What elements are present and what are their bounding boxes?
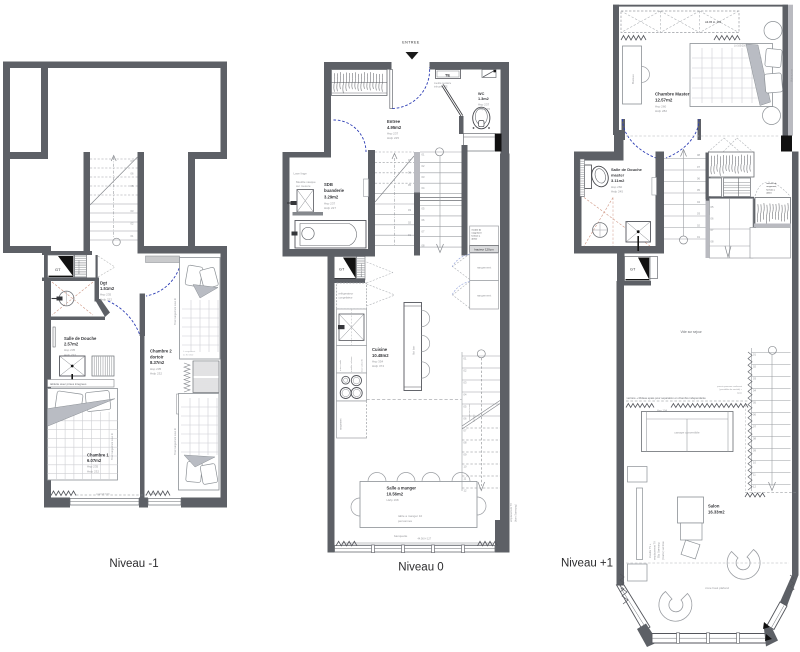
svg-text:tableau abonne: tableau abonne [360,262,363,277]
svg-text:Salle de Douche: Salle de Douche [64,336,97,341]
svg-text:meuble penderie: meuble penderie [434,82,452,85]
svg-text:Chambre Master: Chambre Master [655,92,690,97]
svg-text:emplacement TV: emplacement TV [510,503,513,522]
svg-text:Hsfp 225: Hsfp 225 [387,136,399,140]
svg-text:10.48m2: 10.48m2 [372,353,389,358]
svg-text:Hsp 235: Hsp 235 [64,348,76,352]
svg-text:meuble colonne: meuble colonne [351,356,353,372]
svg-text:hauteur 120cm: hauteur 120cm [474,248,494,252]
svg-text:Dgt: Dgt [100,281,108,286]
svg-text:Tiroir rangement sous lit: Tiroir rangement sous lit [174,298,177,325]
svg-text:Ilot bar: Ilot bar [412,346,416,355]
svg-text:rangement: rangement [477,294,492,298]
svg-text:verriere + Rideau epais pour s: verriere + Rideau epais pour separation … [627,396,707,400]
svg-text:formule a: formule a [766,188,776,191]
svg-text:2x 90 /200: 2x 90 /200 [183,355,194,357]
svg-text:Hsp 235: Hsp 235 [87,465,99,469]
svg-text:epais: epais [737,392,742,394]
svg-text:zone haut plafond: zone haut plafond [705,586,729,590]
svg-text:12.57m2: 12.57m2 [655,98,673,103]
svg-text:1.3m2: 1.3m2 [478,97,489,101]
svg-text:micro-onde: micro-onde [339,359,342,371]
svg-text:Salle a manger: Salle a manger [387,486,417,491]
svg-text:prevoir panneau coulissant: prevoir panneau coulissant [717,385,742,388]
svg-text:refrigerateur: refrigerateur [339,292,354,296]
svg-text:Hsfp 232: Hsfp 232 [150,372,162,376]
svg-text:formule a: formule a [472,235,482,238]
svg-text:Niveau +1: Niveau +1 [561,558,613,570]
svg-text:lave vaisselle: lave vaisselle [362,358,364,372]
svg-text:(hors Samsung): (hors Samsung) [515,504,518,522]
svg-text:Hsp 260: Hsp 260 [611,185,623,189]
svg-text:materiel de: materiel de [766,182,777,185]
svg-text:Hsp 354: Hsp 354 [372,360,384,364]
svg-text:Hsp 235: Hsp 235 [100,293,112,297]
svg-text:sur mesure: sur mesure [296,184,311,188]
svg-text:master: master [611,173,625,178]
svg-text:Hsfp 225: Hsfp 225 [478,107,490,111]
svg-text:Hsfp 198: Hsfp 198 [387,498,399,502]
svg-text:Lit 160/200: Lit 160/200 [734,45,747,48]
svg-text:emplacement TV: emplacement TV [653,541,656,560]
svg-text:Alt.95 H. 102: Alt.95 H. 102 [705,20,722,24]
svg-text:Hsfp 245: Hsfp 245 [611,189,623,193]
svg-text:banquette: banquette [394,534,408,538]
svg-text:Chambre 1: Chambre 1 [87,453,109,458]
svg-text:WC: WC [478,92,485,96]
svg-text:Chambre 2: Chambre 2 [150,349,172,354]
svg-text:GT: GT [339,268,345,272]
svg-text:L rangement: L rangement [183,350,196,353]
svg-text:Vide sur rue: Vide sur rue [791,68,794,82]
svg-text:telecom + TE: telecom + TE [434,85,448,88]
svg-text:Hsp 237: Hsp 237 [324,202,336,206]
svg-text:SDB: SDB [324,182,333,187]
svg-text:personnes: personnes [398,519,413,523]
svg-text:Hsfp 282: Hsfp 282 [655,109,667,113]
svg-text:meuble de: meuble de [472,230,483,232]
svg-text:Cuisine: Cuisine [372,347,388,352]
svg-text:Hsp 237: Hsp 237 [478,102,490,106]
svg-text:meuble TV +: meuble TV + [649,543,652,558]
svg-text:canape convertible: canape convertible [674,431,700,435]
svg-text:dortoir: dortoir [150,354,164,359]
svg-text:1.51m2: 1.51m2 [100,286,115,291]
svg-text:TE: TE [445,72,450,77]
svg-text:rangement sous: rangement sous [468,403,471,420]
svg-text:rangement: rangement [472,232,482,235]
svg-text:Hsp 237: Hsp 237 [387,132,399,136]
svg-text:tableau abonne: tableau abonne [78,259,81,274]
svg-text:rangement,: rangement, [766,185,777,188]
svg-text:rangement: rangement [477,266,492,270]
svg-text:definir: definir [472,238,478,241]
svg-text:definir: definir [766,192,772,195]
svg-text:Hsfp 227: Hsfp 227 [324,206,336,210]
svg-text:Tiroir rangement sous lit: Tiroir rangement sous lit [174,428,177,455]
svg-text:6.07m2: 6.07m2 [87,458,102,463]
svg-text:85p Samsung: 85p Samsung [658,542,661,558]
svg-text:GT: GT [630,268,636,272]
svg-text:10.56m2: 10.56m2 [387,491,404,496]
svg-text:8.37m2: 8.37m2 [150,360,165,365]
svg-text:table a manger 10: table a manger 10 [398,514,423,518]
svg-text:(Frame) sur bras: (Frame) sur bras [662,541,665,560]
svg-text:escalier: escalier [473,414,476,422]
svg-text:rangement: rangement [340,418,343,430]
svg-text:Vide sur sejour: Vide sur sejour [681,330,703,334]
svg-text:Niveau 0: Niveau 0 [398,562,443,574]
svg-text:tablette avec prises integrees: tablette avec prises integrees [50,382,87,386]
svg-text:soupirail ht 45: soupirail ht 45 [149,492,163,495]
svg-text:Hsp 235: Hsp 235 [150,367,162,371]
svg-text:congelateur: congelateur [339,296,353,300]
svg-text:Hsp 260: Hsp 260 [655,105,667,109]
svg-text:3.11m2: 3.11m2 [611,178,625,183]
svg-text:4.95m2: 4.95m2 [387,125,402,130]
svg-text:(possibilite de meuble) +: (possibilite de meuble) + [719,388,742,391]
svg-text:Bureau: Bureau [631,74,635,84]
svg-text:ENTREE: ENTREE [402,41,420,45]
svg-text:Hsfp 222: Hsfp 222 [100,297,112,301]
svg-text:Tiroir rangement sous lit: Tiroir rangement sous lit [111,433,114,460]
svg-text:soupirail ht 45: soupirail ht 45 [96,492,110,495]
svg-text:3.29m2: 3.29m2 [324,194,339,199]
svg-text:Niveau -1: Niveau -1 [109,558,158,570]
svg-text:Entree: Entree [387,119,401,124]
svg-text:GT: GT [55,267,61,272]
svg-text:buanderie: buanderie [324,188,345,193]
svg-text:Salon: Salon [708,504,720,509]
svg-text:Salle de Douche: Salle de Douche [611,167,643,172]
svg-text:16.33m2: 16.33m2 [708,509,725,514]
svg-text:Hsfp 232: Hsfp 232 [87,469,99,473]
svg-text:Lave linge: Lave linge [294,172,308,176]
svg-text:Hsfp 374: Hsfp 374 [372,364,384,368]
svg-text:2.57m2: 2.57m2 [64,342,79,347]
svg-text:44.56 H 127: 44.56 H 127 [418,538,432,541]
